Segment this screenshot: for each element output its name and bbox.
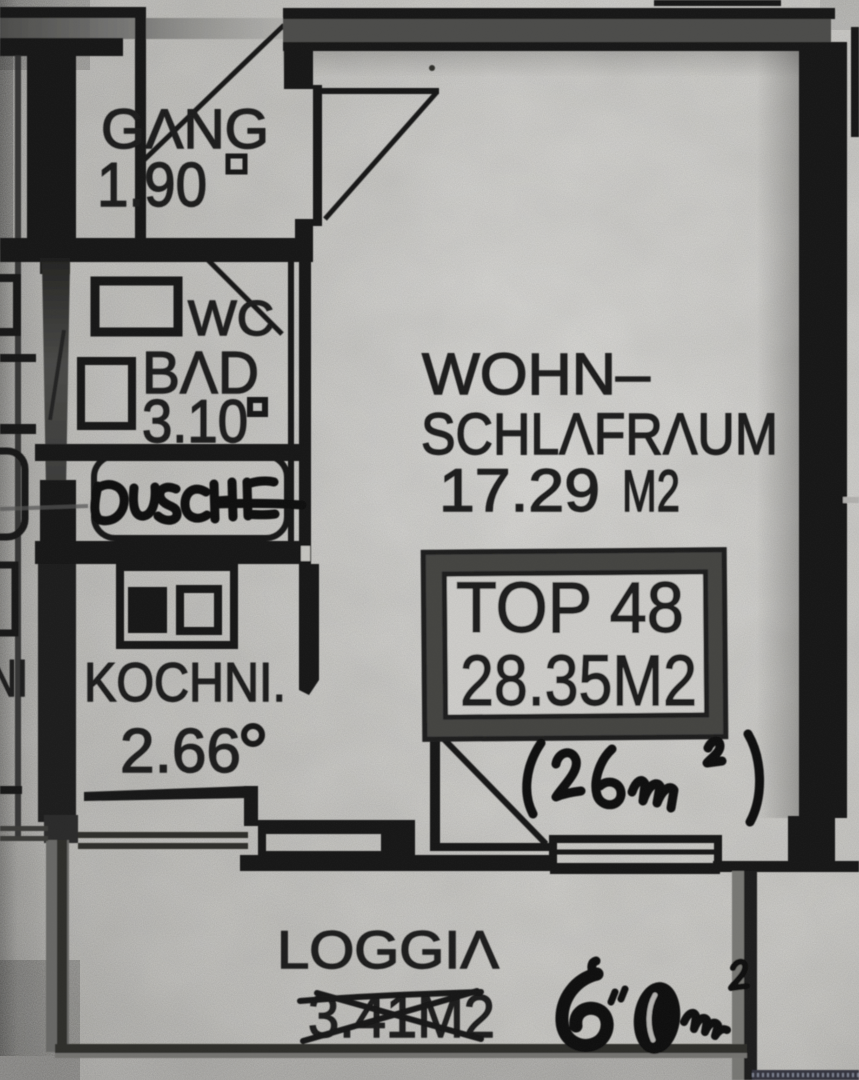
svg-text:WOHN–: WOHN– — [422, 342, 651, 407]
svg-text:NI: NI — [0, 650, 28, 708]
svg-text:28.35M2: 28.35M2 — [460, 642, 697, 721]
svg-text:TOP 48: TOP 48 — [456, 569, 684, 648]
svg-text:M2: M2 — [622, 459, 680, 524]
svg-text:LOGGIΛ: LOGGIΛ — [277, 921, 500, 980]
svg-text:WC: WC — [188, 292, 274, 346]
svg-text:2.66: 2.66 — [120, 717, 241, 786]
svg-text:1.90: 1.90 — [97, 151, 207, 220]
svg-text:KOCHNI.: KOCHNI. — [84, 651, 286, 713]
svg-text:17.29: 17.29 — [439, 457, 600, 524]
